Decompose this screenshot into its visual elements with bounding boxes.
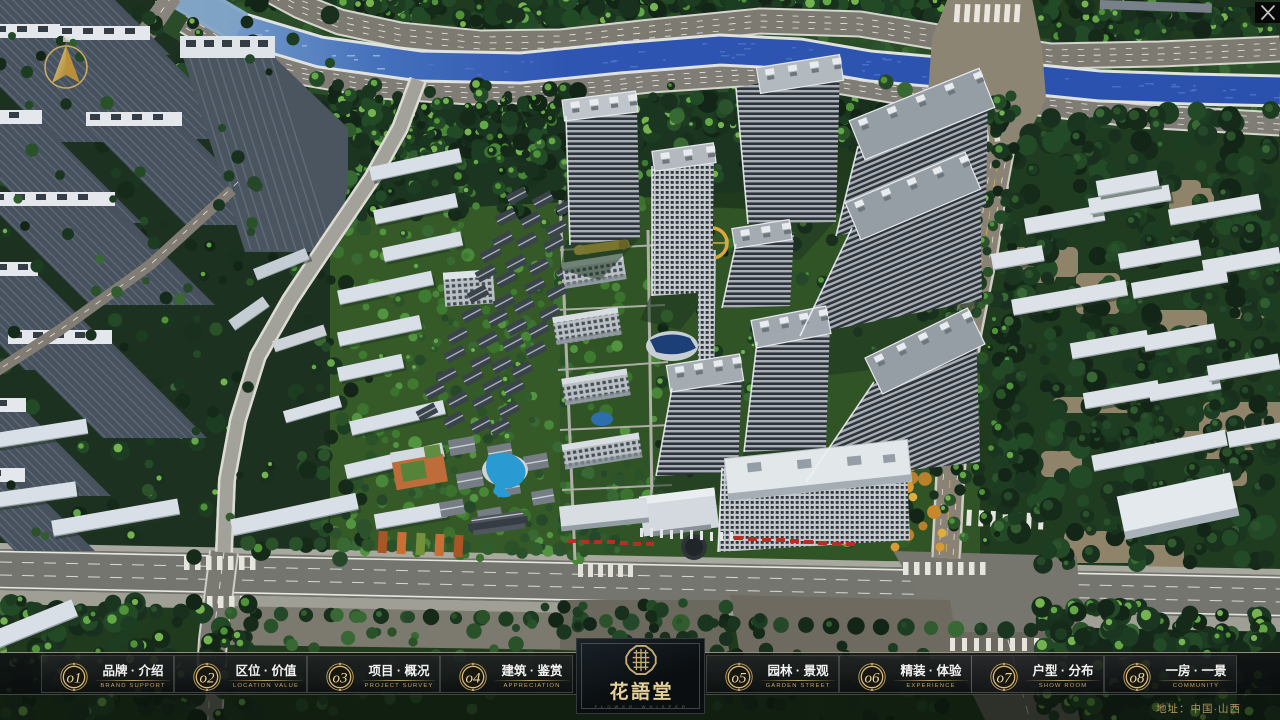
svg-text:o5: o5 [732, 671, 748, 687]
svg-text:o6: o6 [865, 671, 881, 687]
svg-text:o7: o7 [997, 671, 1014, 687]
svg-text:o2: o2 [200, 671, 216, 687]
svg-text:o8: o8 [1130, 671, 1146, 687]
svg-text:o1: o1 [67, 671, 82, 687]
svg-text:o3: o3 [333, 671, 348, 687]
svg-text:o4: o4 [466, 671, 482, 687]
